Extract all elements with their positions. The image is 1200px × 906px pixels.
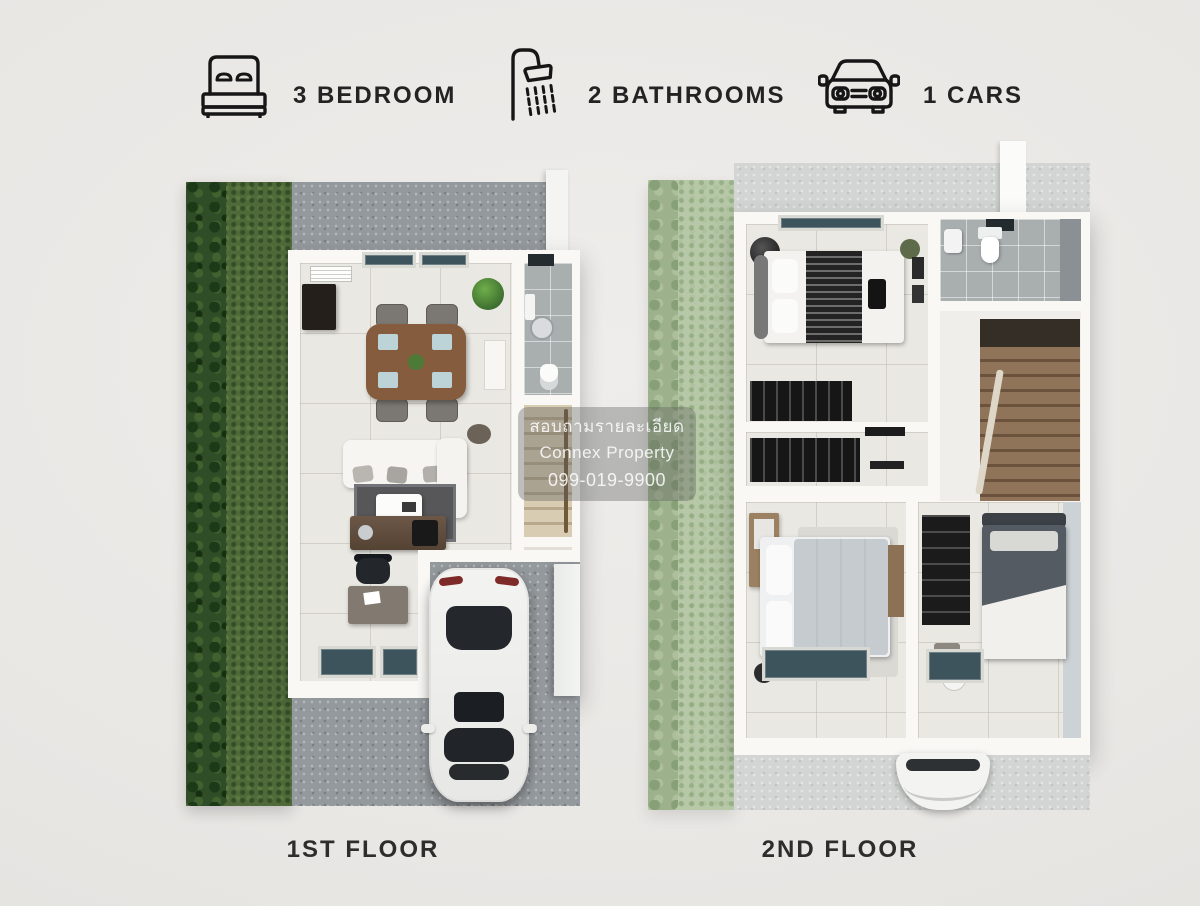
pouf <box>467 424 491 444</box>
toilet <box>978 227 1002 265</box>
wall-stub <box>1000 141 1026 213</box>
bed-pillow <box>772 259 798 293</box>
desk-paper <box>363 591 381 605</box>
shelf-unit <box>302 284 336 330</box>
shower-drain <box>530 316 554 340</box>
garden-hedge <box>186 182 226 806</box>
staircase2 <box>980 319 1080 501</box>
feature-bathrooms: 2 BATHROOMS <box>505 45 786 121</box>
table-book <box>402 502 416 512</box>
plant <box>472 278 504 310</box>
front-window <box>419 252 469 268</box>
clothes-rack <box>750 381 852 421</box>
kitchen-sink <box>358 525 373 540</box>
bedroom3-bed <box>982 513 1066 659</box>
bed-icon <box>195 52 273 118</box>
bathroom2-wall <box>1060 219 1081 301</box>
kitchen-counter <box>350 516 446 550</box>
dining-chair <box>426 398 458 422</box>
master-window <box>762 647 870 681</box>
table-centerpiece <box>408 354 424 370</box>
bed-pillow <box>766 601 792 651</box>
cars-label: 1 CARS <box>923 84 1023 108</box>
car-hood-grille <box>449 764 509 780</box>
car-roof-windshield <box>906 759 980 771</box>
car-roof <box>896 753 990 810</box>
wall-shelf <box>865 427 905 436</box>
sofa-pillow <box>386 466 408 484</box>
wall-shelf <box>870 461 904 469</box>
wardrobe <box>922 515 970 625</box>
bed-duvet <box>794 539 888 655</box>
bedroom2-bed <box>754 251 904 343</box>
carport-side-wall <box>554 564 580 696</box>
feature-bedrooms: 3 BEDROOM <box>195 52 456 118</box>
bed-pillow <box>772 299 798 333</box>
car-mirror <box>523 724 537 733</box>
office-chair <box>356 558 390 584</box>
bed-throw <box>806 251 862 343</box>
toilet-bowl <box>981 237 999 263</box>
wall-console <box>888 545 904 617</box>
bedroom3-window <box>926 649 984 683</box>
stove <box>412 520 438 546</box>
floor-plan-poster: 3 BEDROOM 2 BATHROOMS 1 CARS <box>0 0 1200 906</box>
watermark-line-brand: Connex Property <box>518 442 696 465</box>
bathroom2-sink <box>944 229 962 253</box>
dining-chair <box>376 398 408 422</box>
car-icon <box>818 52 900 118</box>
bedroom2-window <box>778 215 884 231</box>
watermark-line-thai: สอบถามรายละเอียด <box>518 416 696 439</box>
label-1st-floor: 1ST FLOOR <box>287 836 440 864</box>
plant <box>900 239 920 259</box>
rear-window <box>380 646 420 678</box>
bathroom1-window <box>528 254 554 266</box>
bed-pillow <box>990 531 1058 551</box>
car-mirror <box>421 724 435 733</box>
dining-table <box>366 324 466 400</box>
sofa-pillow <box>352 465 374 484</box>
wall-frame <box>912 285 924 303</box>
feature-cars: 1 CARS <box>818 52 1023 118</box>
watermark: สอบถามรายละเอียด Connex Property 099-019… <box>518 407 696 501</box>
watermark-line-phone: 099-019-9900 <box>518 468 696 492</box>
stair-steps <box>980 347 1080 501</box>
rear-window <box>318 646 376 678</box>
placemat <box>378 372 398 388</box>
car-windshield <box>444 728 514 762</box>
car <box>429 568 529 802</box>
master-bed <box>760 537 890 657</box>
car-roof-arc <box>904 771 982 801</box>
shower-icon <box>505 45 563 121</box>
wall-frame <box>912 257 924 279</box>
walkway-faded <box>734 163 1090 213</box>
air-conditioner <box>310 266 352 282</box>
front-window <box>362 252 416 268</box>
placemat <box>432 334 452 350</box>
placemat <box>432 372 452 388</box>
bed-headboard <box>754 255 768 339</box>
bedrooms-label: 3 BEDROOM <box>293 84 456 108</box>
label-2nd-floor: 2ND FLOOR <box>762 836 919 864</box>
floor-plan-2nd <box>648 155 1090 810</box>
bed-tray <box>868 279 886 309</box>
bathrooms-label: 2 BATHROOMS <box>588 84 786 108</box>
bed-pillow <box>766 545 792 595</box>
bathroom1-sink <box>525 294 535 320</box>
car-rear-window <box>446 606 512 650</box>
console-table <box>484 340 506 390</box>
desk <box>348 586 408 624</box>
car-sunroof <box>454 692 504 722</box>
entry-wall <box>425 550 580 562</box>
toilet <box>540 364 558 390</box>
clothes-rack <box>750 438 860 482</box>
stair-landing <box>980 319 1080 347</box>
placemat <box>378 334 398 350</box>
